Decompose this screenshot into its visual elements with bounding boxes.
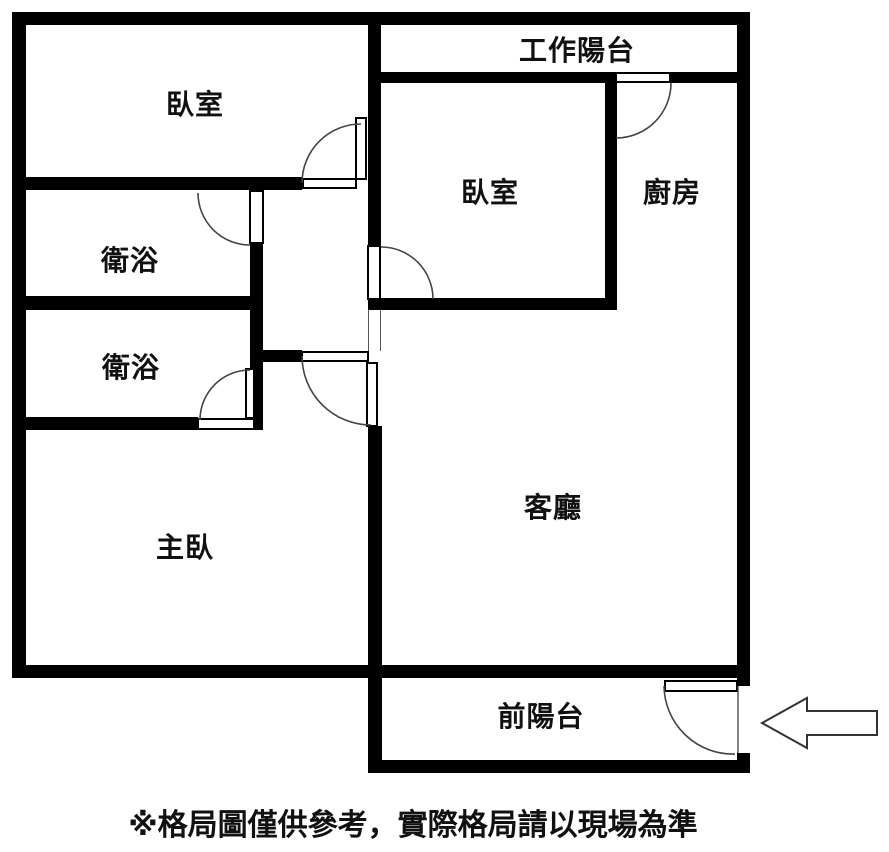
wall-bathroom-divider <box>12 296 263 310</box>
bedroom1-door-leaf <box>355 117 367 180</box>
wall-bedroom1-bottom <box>12 177 302 190</box>
room-label-work-balcony: 工作陽台 <box>519 29 635 69</box>
wall-kitchen-west <box>605 83 617 310</box>
master-door-arc <box>302 356 371 425</box>
room-label-bedroom-top-left: 臥室 <box>166 83 224 123</box>
wall-work-balcony-bottom-left <box>368 72 616 83</box>
wall-outer-top <box>12 12 750 25</box>
room-label-bathroom-1: 衛浴 <box>101 239 159 279</box>
room-label-bathroom-2: 衛浴 <box>102 346 160 386</box>
entrance-door-leaf <box>664 680 738 692</box>
bathroom2-door-leaf <box>245 368 255 419</box>
wall-outer-left <box>12 12 26 678</box>
bedroom2-door-arc <box>381 247 433 299</box>
entrance-door-arc <box>664 686 735 754</box>
wall-work-balcony-bottom-right <box>671 72 737 83</box>
room-label-living-room: 客廳 <box>524 486 582 526</box>
bedroom1-door-arc <box>302 124 361 183</box>
wall-front-balcony-right-stub <box>737 753 750 773</box>
room-label-bedroom-middle: 臥室 <box>461 171 519 211</box>
bathroom1-door-arc <box>198 193 250 245</box>
wall-front-balcony-bottom <box>368 760 750 773</box>
hallway-living-opening <box>368 310 381 351</box>
room-label-master-bedroom: 主臥 <box>156 526 214 566</box>
wall-living-west <box>368 426 382 773</box>
bedroom2-door-leaf <box>367 245 381 300</box>
kitchen-door-arc <box>616 83 671 138</box>
wall-bedroom2-bottom <box>368 298 617 310</box>
master-door-sill <box>301 351 369 362</box>
wall-master-door-stub <box>262 350 302 362</box>
disclaimer-text: ※格局圖僅供參考，實際格局請以現場為準 <box>128 800 697 844</box>
kitchen-door-leaf <box>615 72 671 83</box>
floor-plan-canvas: 臥室工作陽台臥室廚房衛浴衛浴主臥客廳前陽台 ※格局圖僅供參考，實際格局請以現場為… <box>0 0 889 852</box>
bathroom1-door-leaf <box>249 190 264 244</box>
wall-bedroom2-west <box>368 25 381 245</box>
room-label-kitchen: 廚房 <box>643 171 701 211</box>
room-label-front-balcony: 前陽台 <box>497 695 584 735</box>
bathroom2-door-sill <box>197 418 255 430</box>
wall-outer-right <box>737 12 750 686</box>
bedroom1-door-sill <box>302 178 357 189</box>
bathroom2-door-arc <box>200 370 250 420</box>
master-door-leaf <box>366 362 378 427</box>
wall-bathroom2-bottom <box>12 417 198 430</box>
arrow-left-icon <box>762 698 877 748</box>
